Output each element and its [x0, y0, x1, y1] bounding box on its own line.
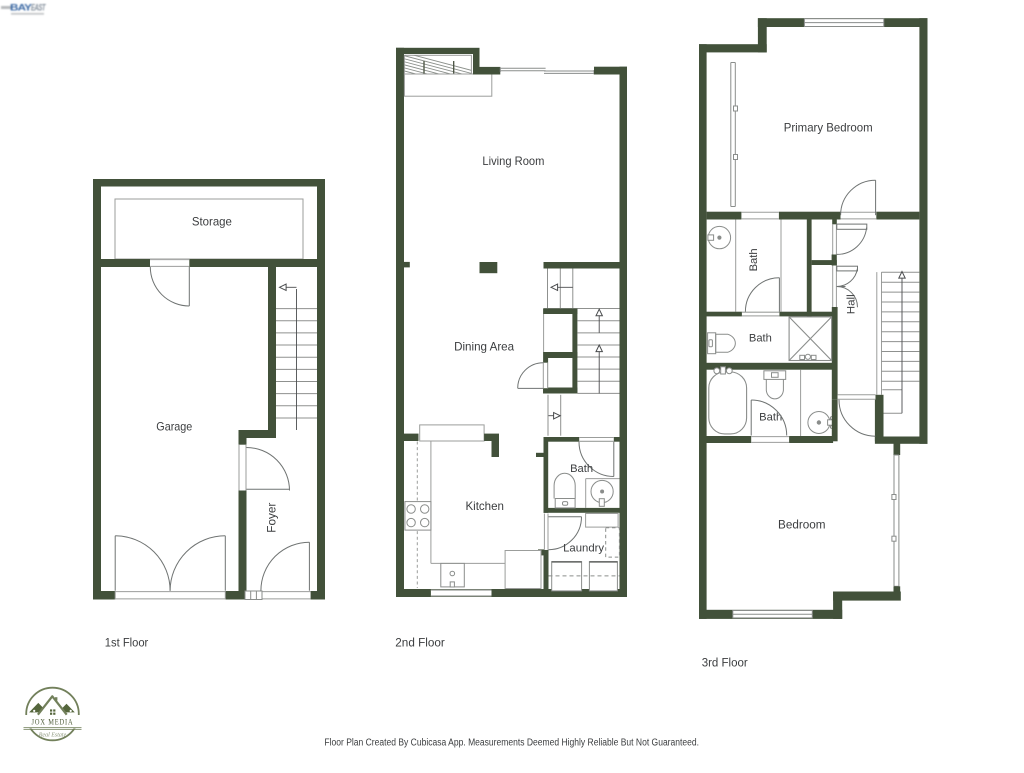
- svg-text:Bath: Bath: [749, 333, 772, 345]
- svg-text:Dining Area: Dining Area: [454, 340, 514, 354]
- svg-text:Garage: Garage: [156, 420, 192, 434]
- svg-text:Bath: Bath: [748, 248, 760, 271]
- svg-text:Bedroom: Bedroom: [778, 519, 826, 531]
- svg-text:Hall: Hall: [845, 294, 857, 314]
- svg-text:1st Floor: 1st Floor: [105, 638, 149, 650]
- svg-text:JOX MEDIA: JOX MEDIA: [32, 718, 74, 727]
- svg-text:Living Room: Living Room: [482, 154, 544, 168]
- svg-text:EAST: EAST: [31, 3, 46, 14]
- svg-text:Foyer: Foyer: [266, 503, 278, 533]
- svg-text:3rd Floor: 3rd Floor: [702, 658, 748, 670]
- svg-text:Bath: Bath: [570, 463, 593, 475]
- svg-text:BAY: BAY: [10, 3, 33, 14]
- svg-text:Primary Bedroom: Primary Bedroom: [784, 121, 873, 135]
- svg-text:2nd Floor: 2nd Floor: [395, 638, 445, 650]
- svg-text:Laundry: Laundry: [563, 542, 605, 554]
- svg-text:Storage: Storage: [192, 215, 232, 229]
- svg-text:Real Estate: Real Estate: [38, 733, 67, 739]
- svg-text:Kitchen: Kitchen: [465, 499, 504, 513]
- svg-text:Floor Plan Created By Cubicasa: Floor Plan Created By Cubicasa App. Meas…: [324, 737, 699, 748]
